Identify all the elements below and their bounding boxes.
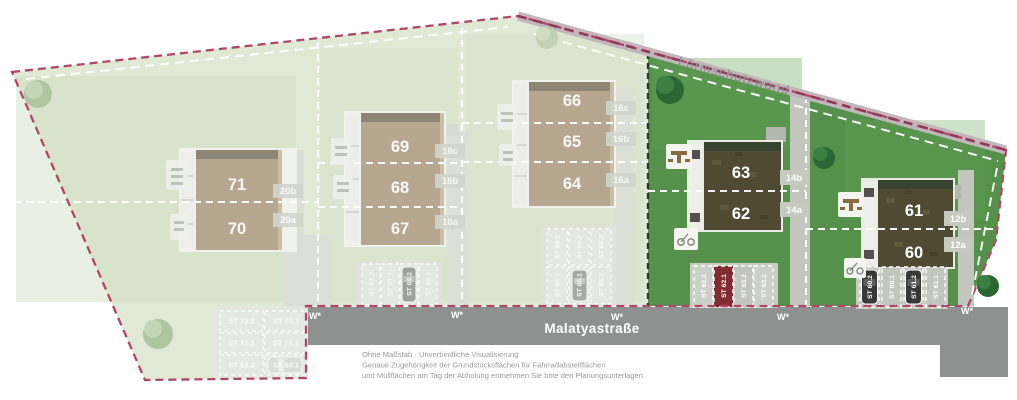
building-67-68-69[interactable]: 69 68 67 bbox=[344, 111, 446, 247]
stall-label: ST 62.2 bbox=[701, 274, 708, 298]
stall-label: ST 66.2 bbox=[576, 235, 583, 259]
water-marker: W* bbox=[961, 306, 973, 316]
stall-label: ST 70.2 bbox=[228, 317, 254, 326]
street-name: Malatyastraße bbox=[544, 321, 639, 336]
address-label: 20a bbox=[280, 215, 297, 226]
address-label: 18a bbox=[442, 217, 459, 228]
address-label: 18c bbox=[442, 146, 458, 157]
disclaimer-line-3: und Müllflächen am Tag der Abholung entn… bbox=[362, 371, 645, 380]
bike-rack-icon bbox=[844, 258, 866, 278]
building-62-63[interactable]: 63 62 bbox=[687, 140, 783, 232]
stall-label: ST 67.1 bbox=[387, 272, 394, 296]
building-60-61[interactable]: 61 60 bbox=[861, 178, 955, 269]
trash-area-icon bbox=[499, 144, 517, 166]
water-marker: W* bbox=[777, 312, 789, 322]
water-marker: W* bbox=[611, 312, 623, 322]
address-label: 16b bbox=[613, 134, 630, 145]
house-number[interactable]: 67 bbox=[391, 220, 409, 238]
stall-label: ST 71.1 bbox=[273, 339, 299, 348]
stall-label: ST 61.1 bbox=[933, 275, 940, 299]
house-number[interactable]: 61 bbox=[905, 202, 923, 220]
house-number[interactable]: 68 bbox=[391, 179, 409, 197]
address-label: 14a bbox=[786, 205, 803, 216]
disclaimer-line-2: Genaue Zugehörigkeit der Grundstücksfläc… bbox=[362, 361, 606, 370]
street-corner bbox=[940, 307, 1008, 377]
parking-row-67-69: ST 67.2 ST 67.1 ST 69.2 ST 69.1 bbox=[362, 264, 437, 305]
water-marker: W* bbox=[451, 310, 463, 320]
stall-label: ST 68.2 bbox=[228, 361, 254, 370]
stall-label: ST 63.2 bbox=[741, 274, 748, 298]
stall-label: ST 60.1 bbox=[889, 275, 896, 299]
house-number[interactable]: 64 bbox=[563, 175, 582, 193]
stall-label: ST 70.1 bbox=[273, 317, 299, 326]
water-marker: W* bbox=[309, 311, 321, 321]
address-label: 12a bbox=[950, 240, 967, 251]
building-64-65-66[interactable]: 66 65 64 bbox=[512, 80, 616, 208]
address-label: 20b bbox=[280, 186, 297, 197]
stall-label: ST 67.2 bbox=[368, 272, 375, 296]
stall-label: ST 61.2 bbox=[911, 275, 918, 299]
stall-label: ST 64.1 bbox=[554, 273, 561, 297]
address-label: 14b bbox=[786, 173, 803, 184]
stall-label: ST 64.2 bbox=[554, 235, 561, 259]
address-label: 12b bbox=[950, 214, 967, 225]
stall-label: ST 69.2 bbox=[406, 272, 413, 296]
stall-label: ST 68.1 bbox=[273, 361, 299, 370]
stall-label: ST 65.2 bbox=[598, 235, 605, 259]
address-label: 16a bbox=[613, 175, 630, 186]
trash-area-icon bbox=[170, 214, 188, 240]
stall-label: ST 63.1 bbox=[761, 274, 768, 298]
stall-label: ST 65.1 bbox=[598, 273, 605, 297]
house-number[interactable]: 60 bbox=[905, 244, 923, 262]
house-number[interactable]: 71 bbox=[228, 176, 246, 194]
bike-rack-icon bbox=[331, 138, 351, 165]
bike-rack-icon bbox=[497, 104, 517, 130]
house-number[interactable]: 69 bbox=[391, 138, 409, 156]
house-number[interactable]: 65 bbox=[563, 133, 581, 151]
garage-strip bbox=[514, 84, 527, 204]
stall-label: ST 66.1 bbox=[576, 273, 583, 297]
building-70-71[interactable]: 71 70 bbox=[179, 148, 297, 252]
stall-label: ST 62.1 bbox=[721, 274, 728, 298]
house-number[interactable]: 70 bbox=[228, 220, 246, 238]
bike-rack-icon bbox=[674, 228, 698, 250]
disclaimer: Ohne Maßstab · Unverbindliche Visualisie… bbox=[362, 350, 645, 380]
bin-shelter bbox=[766, 127, 786, 142]
site-plan: 71 70 69 68 67 66 65 64 bbox=[0, 0, 1017, 400]
address-label: 18b bbox=[442, 176, 459, 187]
parking-row-62-63: ST 62.2 ST 62.1 ST 63.2 ST 63.1 bbox=[694, 266, 773, 307]
house-number[interactable]: 63 bbox=[732, 164, 750, 182]
address-label: 16c bbox=[613, 103, 629, 114]
house-number[interactable]: 62 bbox=[732, 205, 750, 223]
trash-area-icon bbox=[333, 175, 353, 199]
disclaimer-line-1: Ohne Maßstab · Unverbindliche Visualisie… bbox=[362, 350, 518, 359]
stall-label: ST 69.1 bbox=[425, 272, 432, 296]
parking-mid-block: ST 64.2 ST 66.2 ST 65.2 ST 64.1 ST 66.1 … bbox=[547, 229, 611, 304]
stall-label: ST 71.2 bbox=[228, 339, 254, 348]
stall-label: ST 60.2 bbox=[867, 275, 874, 299]
house-number[interactable]: 66 bbox=[563, 92, 581, 110]
